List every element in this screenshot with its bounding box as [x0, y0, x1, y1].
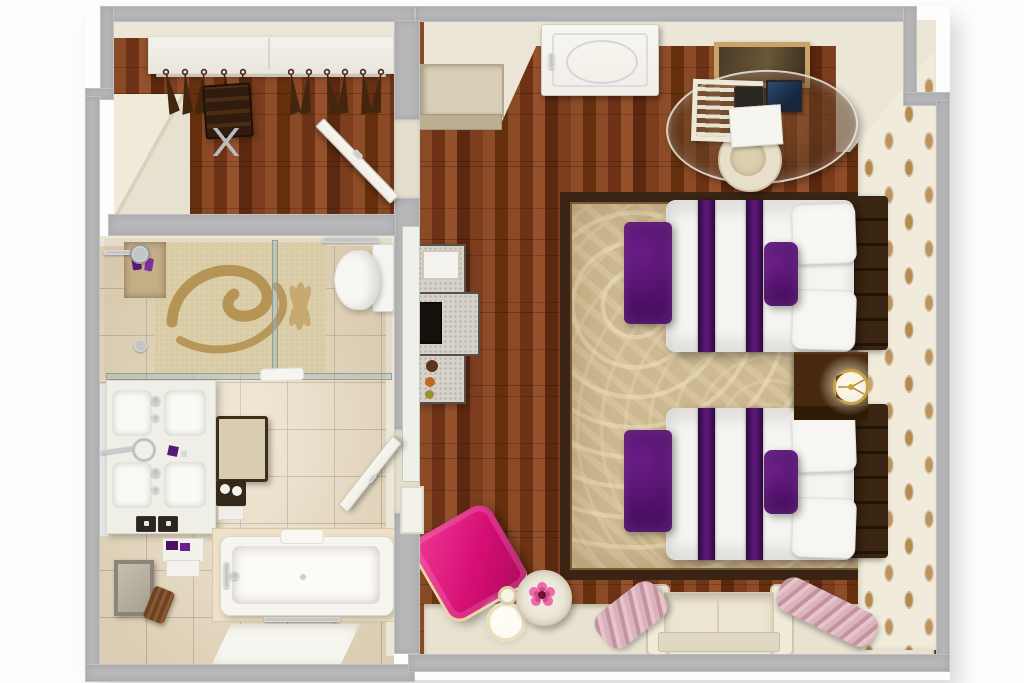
wall-bottom-bathroom [85, 664, 415, 682]
wall-closet-bathroom [108, 214, 396, 236]
wall-divider-lower [394, 513, 420, 654]
wall-bottom-bedroom [408, 654, 950, 672]
wall-left [85, 96, 100, 680]
wall-divider-upper [394, 20, 420, 120]
leaning-frame [400, 486, 424, 534]
floorplan-render [0, 0, 1024, 683]
wall-top-closet [100, 6, 415, 22]
wall-left-upper [100, 6, 114, 94]
wall-mirror-panel [402, 226, 420, 482]
doorway-closet [394, 120, 420, 198]
wall-right [936, 100, 950, 660]
walls [0, 0, 1024, 683]
wall-corner-notch-v [903, 6, 917, 98]
wall-top-bedroom [415, 6, 917, 22]
